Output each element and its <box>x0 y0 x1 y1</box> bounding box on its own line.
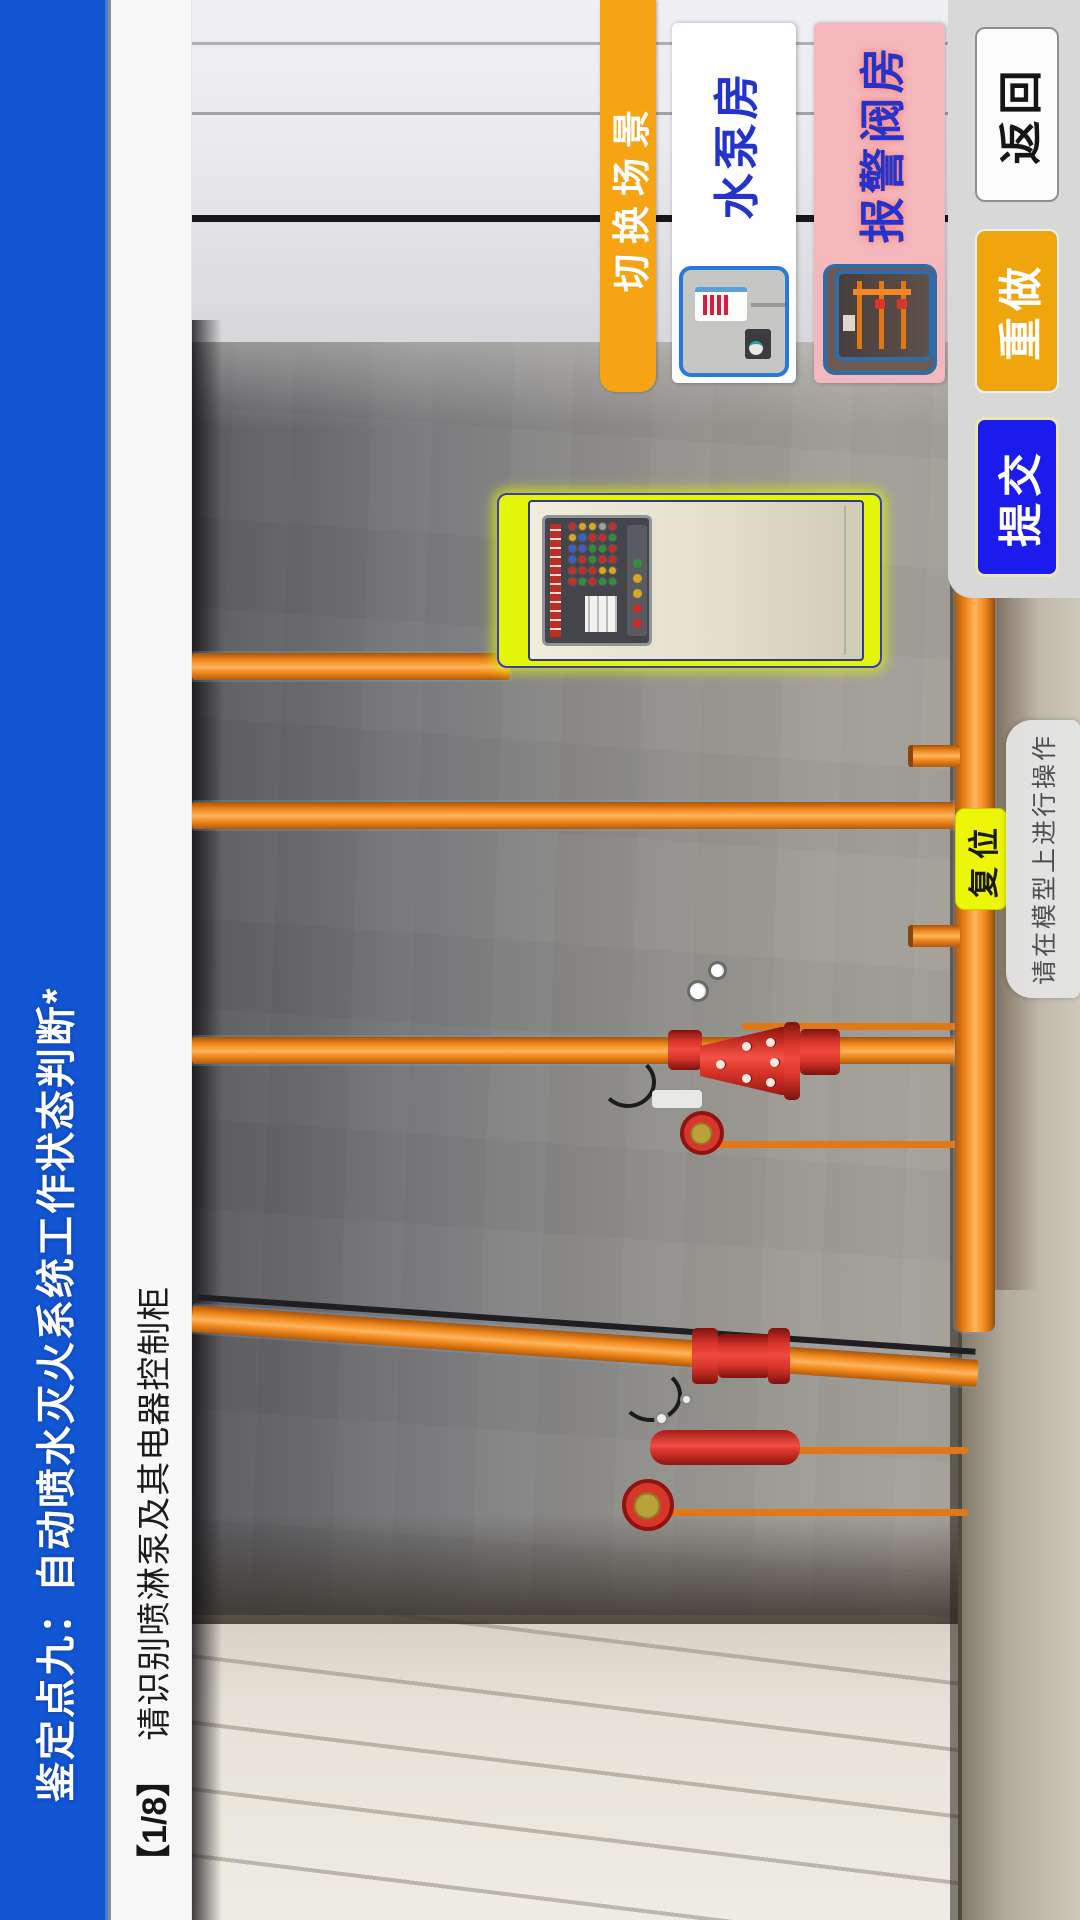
scene-option-alarm-valve-room[interactable]: 报警阀房 <box>814 23 945 383</box>
page-title: 鉴定点九：自动喷水灭火系统工作状态判断* <box>24 986 82 1802</box>
riser-pipe-3[interactable] <box>192 1037 964 1064</box>
trim-handwheel <box>680 1393 693 1406</box>
panel-label-plate <box>581 592 621 636</box>
riser-pipe-2[interactable] <box>192 802 964 829</box>
pump-room-thumbnail <box>679 266 789 377</box>
drain-pipe <box>697 1141 968 1148</box>
valve-flange <box>668 1030 702 1070</box>
header-pipe[interactable] <box>955 522 995 1332</box>
cabinet-door-seam <box>844 506 846 655</box>
header-stub-pipe <box>908 925 960 947</box>
sensor-tube <box>600 1056 656 1108</box>
valve-flange <box>768 1328 790 1384</box>
task-bar: 【1/8】 请识别喷淋泵及其电器控制柜 <box>111 0 192 1920</box>
landscape-stage: 切换场景 水泵房 报警阀房 复位 请在模型上进行操作 提交 重做 返回 <box>0 0 1080 1920</box>
reset-button[interactable]: 复位 <box>955 808 1008 910</box>
panel-red-banner <box>550 524 561 637</box>
mini-valve <box>897 299 907 309</box>
pressure-gauge <box>687 980 709 1002</box>
indicator-grid <box>569 521 621 585</box>
left-wall-shadow <box>192 1514 1080 1624</box>
trim-handwheel <box>654 1411 669 1426</box>
mini-pump-face <box>749 341 763 355</box>
left-marble-wall <box>192 1615 1080 1920</box>
progress-badge: 【1/8】 <box>127 1763 176 1878</box>
scene-switch-label: 切换场景 <box>601 100 656 292</box>
alarm-valve-room-thumbnail <box>823 264 937 375</box>
scene-switch-tab[interactable]: 切换场景 <box>600 0 656 392</box>
electric-control-cabinet[interactable] <box>528 500 864 661</box>
back-button[interactable]: 返回 <box>975 27 1059 202</box>
water-motor-gong <box>680 1111 724 1155</box>
panel-button-strip <box>627 525 647 636</box>
cabinet-control-panel <box>542 515 652 646</box>
scene-option-pump-room[interactable]: 水泵房 <box>672 23 796 383</box>
valve-flange <box>784 1022 800 1100</box>
riser-pipe-1[interactable] <box>192 653 510 680</box>
mini-riser <box>853 289 911 295</box>
pump-room-label: 水泵房 <box>701 23 767 266</box>
ceiling-shadow <box>192 320 222 1920</box>
action-panel: 提交 重做 返回 <box>948 0 1080 598</box>
mini-conduit <box>751 303 787 307</box>
device-screen: 切换场景 水泵房 报警阀房 复位 请在模型上进行操作 提交 重做 返回 <box>0 0 1080 1920</box>
redo-button[interactable]: 重做 <box>975 229 1059 393</box>
pressure-gauge <box>708 961 727 980</box>
alarm-valve-room-label: 报警阀房 <box>847 23 913 264</box>
mini-screen <box>703 295 729 315</box>
model-hint: 请在模型上进行操作 <box>1006 720 1080 998</box>
drain-pipe <box>650 1509 968 1516</box>
sensor-tube <box>620 1368 682 1422</box>
title-bar: 鉴定点九：自动喷水灭火系统工作状态判断* <box>0 0 108 1920</box>
valve-flange <box>692 1328 718 1384</box>
instruction-text: 请识别喷淋泵及其电器控制柜 <box>127 1286 176 1741</box>
submit-button[interactable]: 提交 <box>975 417 1059 577</box>
mini-sign <box>843 315 855 331</box>
header-stub-pipe <box>908 745 960 767</box>
air-chamber <box>650 1430 800 1465</box>
mini-valve <box>875 299 885 309</box>
trim-valve <box>652 1090 702 1108</box>
cabinet-highlight <box>497 493 882 668</box>
valve-body <box>718 1334 770 1378</box>
water-motor-gong <box>622 1479 674 1531</box>
valve-outlet <box>800 1029 840 1075</box>
